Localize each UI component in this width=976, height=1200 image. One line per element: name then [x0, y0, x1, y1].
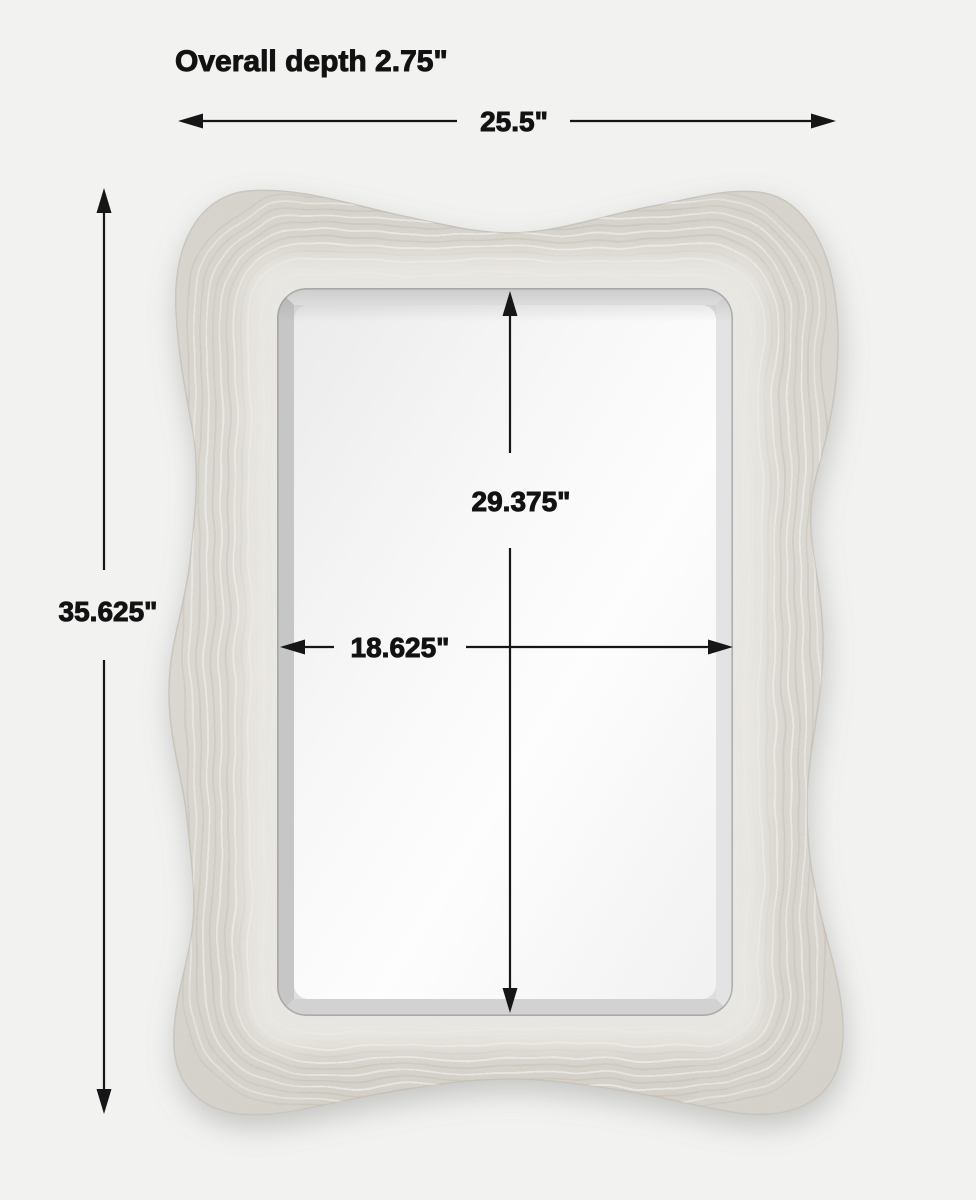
dimension-diagram: Overall depth 2.75" 25.5" 35.625" 29.375… — [0, 0, 976, 1200]
overall-height-label: 35.625" — [59, 596, 158, 627]
mirror-bevel-left — [277, 288, 294, 1016]
mirror-glass — [277, 288, 733, 1016]
arrowhead-up-icon — [97, 188, 112, 213]
arrowhead-right-icon — [811, 114, 836, 129]
overall-width-dimension: 25.5" — [178, 106, 836, 137]
diagram-canvas: Overall depth 2.75" 25.5" 35.625" 29.375… — [0, 0, 976, 1200]
arrowhead-left-icon — [178, 114, 203, 129]
mirror-bevel-right — [716, 288, 733, 1016]
mirror-top-shadow — [277, 288, 733, 322]
overall-width-label: 25.5" — [480, 106, 548, 137]
mirror-width-label: 18.625" — [351, 632, 450, 663]
mirror-bevel-bottom — [277, 999, 733, 1016]
overall-height-dimension: 35.625" — [59, 188, 158, 1114]
mirror-product-image — [150, 178, 855, 1130]
mirror-height-label: 29.375" — [472, 486, 571, 517]
arrowhead-down-icon — [97, 1089, 112, 1114]
overall-depth-label: Overall depth 2.75" — [175, 45, 448, 78]
